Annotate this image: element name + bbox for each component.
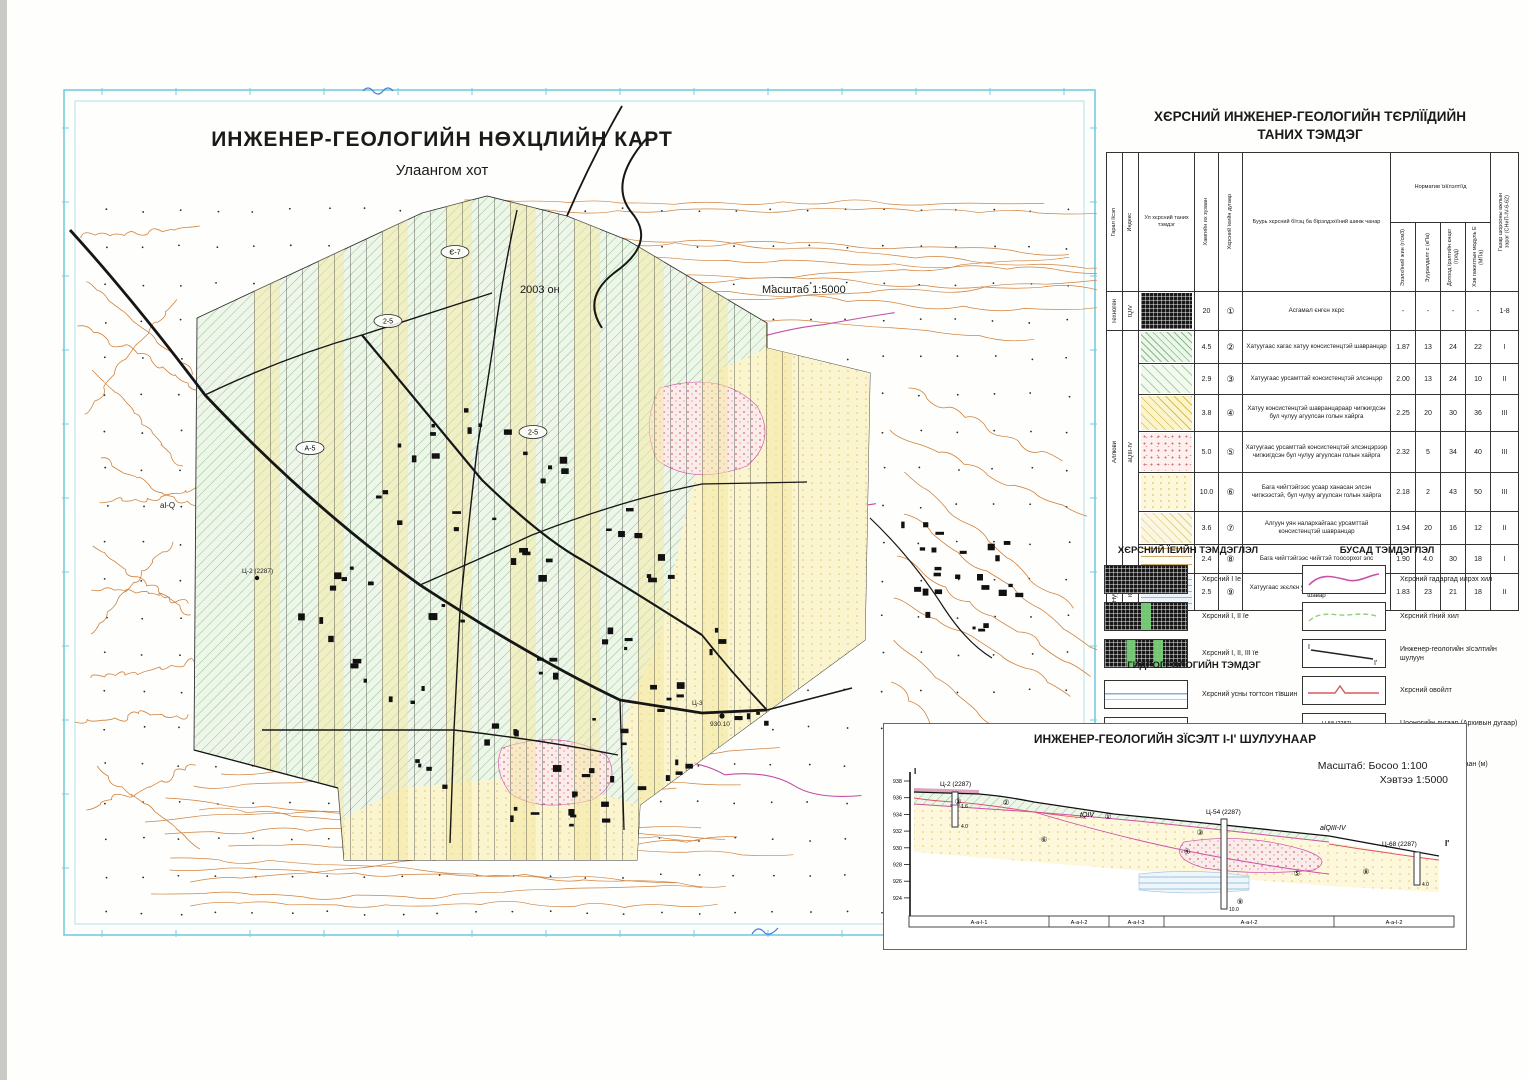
section-start-mark: I xyxy=(914,767,916,776)
svg-text:А-а-I-1: А-а-I-1 xyxy=(971,920,988,926)
section-line-swatch: I I' xyxy=(1302,639,1386,668)
hydro-legend-title: ГИДРОГЕОЛОГИЙН ТЭМДЭГ xyxy=(1104,660,1284,672)
section-end-mark: I' xyxy=(1445,839,1449,848)
cell-thickness: 3.8 xyxy=(1195,395,1219,432)
svg-text:926: 926 xyxy=(893,879,902,885)
svg-text:②: ② xyxy=(1003,798,1010,807)
cell-cohesion: 13 xyxy=(1416,364,1441,395)
ellipse-label: 2-5 xyxy=(383,319,393,326)
legend-item-label: Хєрсний I, II, III їе xyxy=(1202,649,1259,658)
ink-artifact xyxy=(360,82,400,98)
cell-friction: 24 xyxy=(1441,331,1466,364)
cell-layer-number: ⑦ xyxy=(1219,512,1243,545)
soil-swatch xyxy=(1139,512,1195,545)
cell-thickness: 20 xyxy=(1195,292,1219,331)
map-scale-label: Масштаб 1:5000 xyxy=(762,284,846,296)
legend-item: Хєрсний гадаргад илрэх хил xyxy=(1302,565,1522,594)
cell-layer-number: ③ xyxy=(1219,364,1243,395)
cell-density: 1.87 xyxy=(1391,331,1416,364)
soil-swatch xyxy=(1139,364,1195,395)
cell-origin: Аллюви xyxy=(1107,331,1123,574)
cell-friction: 16 xyxy=(1441,512,1466,545)
legend-title-line1: ХЄРСНИЙ ИНЖЕНЕР-ГЕОЛОГИЙН ТЄРЛЇЇДИЙН xyxy=(1100,108,1520,126)
legend-item: Хєрсний овойлт xyxy=(1302,676,1522,705)
cross-section-panel: 938936 934932 930928 926924 I 1.6 4.0 Ц-… xyxy=(883,723,1467,950)
cell-modulus: 12 xyxy=(1466,512,1491,545)
legend-item-label: Хєрсний I, II їе xyxy=(1202,612,1249,621)
legend-item-label: Хєрсний гїний хил xyxy=(1400,612,1459,621)
svg-text:934: 934 xyxy=(893,812,902,818)
cell-category: III xyxy=(1491,473,1519,512)
map-unit-label-alq: al-Q xyxy=(160,501,175,510)
deep-boundary-swatch xyxy=(1302,602,1386,631)
legend-item: Хєрсний I, II їе xyxy=(1104,602,1300,631)
table-row: 10.0 ⑥ Бага чийгтэйгээс усаар ханасан эл… xyxy=(1107,473,1519,512)
cell-density: 2.25 xyxy=(1391,395,1416,432)
col-header-cohesion: Зууралдалт с (кПа) xyxy=(1416,223,1441,292)
svg-text:10.0: 10.0 xyxy=(1229,907,1239,913)
cell-modulus: 40 xyxy=(1466,432,1491,473)
cell-layer-number: ① xyxy=(1219,292,1243,331)
svg-text:932: 932 xyxy=(893,829,902,835)
section-scale-vertical: Босоо 1:100 xyxy=(1369,760,1428,772)
table-row: 2.9 ③ Хатуугаас урсамттай консистенцтэй … xyxy=(1107,364,1519,395)
cell-density: 2.32 xyxy=(1391,432,1416,473)
cell-description: Алгуун уян налархайгаас урсамттай консис… xyxy=(1243,512,1391,545)
ellipse-label: 2-5 xyxy=(528,430,538,437)
svg-text:③: ③ xyxy=(1197,828,1204,837)
svg-text:А-а-I-2: А-а-I-2 xyxy=(1241,920,1258,926)
cell-density: - xyxy=(1391,292,1416,331)
cell-category: II xyxy=(1491,364,1519,395)
legend-item: Хєрсний гїний хил xyxy=(1302,602,1522,631)
cell-description: Бага чийгтэйгээс усаар ханасан элсэн чиг… xyxy=(1243,473,1391,512)
soil-swatch xyxy=(1139,395,1195,432)
svg-text:4.0: 4.0 xyxy=(1422,882,1429,888)
legend-item-label: Инженер-геологийн зїсэлтийн шулуун xyxy=(1400,645,1522,663)
cell-description: Асгамал єнгєн хєрс xyxy=(1243,292,1391,331)
cell-layer-number: ⑥ xyxy=(1219,473,1243,512)
col-header-density: Эзэлхїїний жин (г/см3) xyxy=(1391,223,1416,292)
cell-modulus: 10 xyxy=(1466,364,1491,395)
cell-index: aQIII-IV xyxy=(1123,331,1139,574)
col-header-modulus: Хэв гажилтын модуль Е (МПа) xyxy=(1466,223,1491,292)
col-header-thickness: Хамгийн их зузаан xyxy=(1195,153,1219,292)
table-row: 5.0 ⑤ Хатуугаас урсамттай консистенцтэй … xyxy=(1107,432,1519,473)
cell-modulus: 22 xyxy=(1466,331,1491,364)
cell-description: Хатуугаас хагас хатуу консистенцтэй шавр… xyxy=(1243,331,1391,364)
cell-thickness: 10.0 xyxy=(1195,473,1219,512)
cell-cohesion: 5 xyxy=(1416,432,1441,473)
unit-label-alq: alQIII-IV xyxy=(1320,825,1347,832)
legend-table-title: ХЄРСНИЙ ИНЖЕНЕР-ГЕОЛОГИЙН ТЄРЛЇЇДИЙН ТАН… xyxy=(1100,108,1520,144)
cell-friction: 24 xyxy=(1441,364,1466,395)
cell-cohesion: 20 xyxy=(1416,512,1441,545)
legend-item-label: Хєрсний I їе xyxy=(1202,575,1241,584)
layer-1-swatch xyxy=(1104,565,1188,594)
cell-cohesion: 2 xyxy=(1416,473,1441,512)
cell-category: II xyxy=(1491,512,1519,545)
col-header-layer-no: Хєрсний їеийн дугаар xyxy=(1219,153,1243,292)
col-header-friction: Дотоод їрэлтийн єнцєг (град) xyxy=(1441,223,1466,292)
cell-cohesion: 13 xyxy=(1416,331,1441,364)
cell-friction: 34 xyxy=(1441,432,1466,473)
section-distance-bar: А-а-I-1 А-а-I-2 А-а-I-3 А-а-I-2 А-а-I-2 xyxy=(909,916,1454,927)
soil-layer-legend-title: ХЄРСНИЙ ЇЕИЙН ТЭМДЭГЛЭЛ xyxy=(1108,545,1268,557)
cell-layer-number: ② xyxy=(1219,331,1243,364)
svg-text:4.0: 4.0 xyxy=(961,824,968,830)
svg-text:А-а-I-2: А-а-I-2 xyxy=(1386,920,1403,926)
map-borehole-label: Ц-3 xyxy=(692,700,703,707)
surface-boundary-swatch xyxy=(1302,565,1386,594)
cell-modulus: 36 xyxy=(1466,395,1491,432)
cell-cohesion: 20 xyxy=(1416,395,1441,432)
scanned-map-page: 2-5 А-5 2-5 Є-7 ИНЖЕНЕР-ГЕОЛОГИЙН НӨХЦЛИ… xyxy=(0,0,1527,1080)
cell-description: Хатуугаас урсамттай консистенцтэй элсэнц… xyxy=(1243,432,1391,473)
cell-layer-number: ⑤ xyxy=(1219,432,1243,473)
other-legend-title: БУСАД ТЭМДЭГЛЭЛ xyxy=(1302,545,1472,557)
cell-cohesion: - xyxy=(1416,292,1441,331)
cell-category: III xyxy=(1491,395,1519,432)
cell-friction: - xyxy=(1441,292,1466,331)
cell-density: 1.94 xyxy=(1391,512,1416,545)
table-row: 3.8 ④ Хатуу консистенцтэй шавранцараар ч… xyxy=(1107,395,1519,432)
cell-category: III xyxy=(1491,432,1519,473)
map-year-label: 2003 он xyxy=(520,284,560,296)
soil-heave-swatch xyxy=(1302,676,1386,705)
cell-category: I xyxy=(1491,331,1519,364)
unit-label-tq: tQIV xyxy=(1080,812,1095,819)
section-title: ИНЖЕНЕР-ГЕОЛОГИЙН ЗЇСЭЛТ I-I' ШУЛУУНААР xyxy=(884,732,1466,746)
cell-thickness: 5.0 xyxy=(1195,432,1219,473)
soil-layer-legend: ХЄРСНИЙ ЇЕИЙН ТЭМДЭГЛЭЛ Хєрсний I їе Хєр… xyxy=(1104,545,1300,676)
cross-section-drawing: 938936 934932 930928 926924 I 1.6 4.0 Ц-… xyxy=(884,724,1466,949)
table-row: Техноген tQIV 20 ① Асгамал єнгєн хєрс - … xyxy=(1107,292,1519,331)
table-row: Аллюви aQIII-IV 4.5 ② Хатуугаас хагас ха… xyxy=(1107,331,1519,364)
col-header-symbol: Ул хєрсний таних тэмдэг xyxy=(1139,153,1195,292)
svg-text:924: 924 xyxy=(893,896,902,902)
cell-density: 2.00 xyxy=(1391,364,1416,395)
svg-text:Ц-2 (2287): Ц-2 (2287) xyxy=(940,781,971,788)
soil-types-table: Гарал їїсэл Индекс Ул хєрсний таних тэмд… xyxy=(1106,152,1519,611)
cell-index: tQIV xyxy=(1123,292,1139,331)
svg-text:⑤: ⑤ xyxy=(1294,869,1301,878)
ellipse-label: Є-7 xyxy=(449,250,460,257)
cell-modulus: 50 xyxy=(1466,473,1491,512)
water-level-swatch xyxy=(1104,680,1188,709)
table-row: 3.6 ⑦ Алгуун уян налархайгаас урсамттай … xyxy=(1107,512,1519,545)
scanner-edge xyxy=(0,0,7,1080)
col-header-index: Индекс xyxy=(1123,153,1139,292)
cell-category: 1-8 xyxy=(1491,292,1519,331)
svg-text:⑥: ⑥ xyxy=(1041,835,1048,844)
svg-text:938: 938 xyxy=(893,779,902,785)
svg-text:930: 930 xyxy=(893,846,902,852)
cell-thickness: 2.9 xyxy=(1195,364,1219,395)
legend-item: Хєрсний усны тогтсон тївшин xyxy=(1104,680,1300,709)
ellipse-label: А-5 xyxy=(305,446,316,453)
svg-text:Ц-68 (2287): Ц-68 (2287) xyxy=(1382,841,1417,848)
soil-swatch xyxy=(1139,432,1195,473)
svg-text:①: ① xyxy=(1105,812,1112,821)
svg-text:928: 928 xyxy=(893,863,902,869)
cell-friction: 30 xyxy=(1441,395,1466,432)
legend-item-label: Хєрсний гадаргад илрэх хил xyxy=(1400,575,1492,584)
map-title: ИНЖЕНЕР-ГЕОЛОГИЙН НӨХЦЛИЙН КАРТ xyxy=(192,128,692,152)
cell-density: 2.18 xyxy=(1391,473,1416,512)
legend-item: I I' Инженер-геологийн зїсэлтийн шулуун xyxy=(1302,639,1522,668)
cell-thickness: 4.5 xyxy=(1195,331,1219,364)
svg-text:I': I' xyxy=(1374,660,1377,667)
elevation-labels: 938936 934932 930928 926924 xyxy=(893,779,902,902)
col-header-description: Буурь хєрсний бїтэц ба бїрэлдэхїїний шин… xyxy=(1243,153,1391,292)
legend-item-label: Хєрсний усны тогтсон тївшин xyxy=(1202,690,1297,699)
section-scale: Масштаб: Босоо 1:100 Хэвтээ 1:5000 xyxy=(1318,760,1448,787)
svg-text:А-а-I-2: А-а-I-2 xyxy=(1071,920,1088,926)
col-header-origin: Гарал їїсэл xyxy=(1107,153,1123,292)
section-scale-horizontal: Хэвтээ 1:5000 xyxy=(1380,774,1448,786)
col-header-norm-group: Норматив їзїїлэлтїїд xyxy=(1391,153,1491,223)
svg-text:I: I xyxy=(1308,644,1310,651)
ink-artifact xyxy=(748,922,784,942)
svg-text:936: 936 xyxy=(893,796,902,802)
cell-thickness: 3.6 xyxy=(1195,512,1219,545)
cell-layer-number: ④ xyxy=(1219,395,1243,432)
svg-text:А-а-I-3: А-а-I-3 xyxy=(1128,920,1145,926)
svg-text:1.6: 1.6 xyxy=(961,804,968,810)
soil-swatch xyxy=(1139,473,1195,512)
svg-text:④: ④ xyxy=(1184,847,1191,856)
soil-swatch xyxy=(1139,331,1195,364)
map-subtitle: Улаангом хот xyxy=(192,162,692,179)
svg-text:⑨: ⑨ xyxy=(1237,897,1244,906)
section-scale-prefix: Масштаб: xyxy=(1318,760,1366,772)
cell-modulus: - xyxy=(1466,292,1491,331)
cell-origin: Техноген xyxy=(1107,292,1123,331)
legend-item: Хєрсний I їе xyxy=(1104,565,1300,594)
cell-description: Хатуугаас урсамттай консистенцтэй элсэнц… xyxy=(1243,364,1391,395)
legend-title-line2: ТАНИХ ТЭМДЭГ xyxy=(1100,126,1520,144)
col-header-category: Газар шорооны ажлын зэрэг (СНиП-IV-6-62) xyxy=(1491,153,1519,292)
cell-description: Хатуу консистенцтэй шавранцараар чигжигд… xyxy=(1243,395,1391,432)
soil-swatch xyxy=(1139,292,1195,331)
svg-text:Ц-54 (2287): Ц-54 (2287) xyxy=(1206,809,1241,816)
legend-item-label: Хєрсний овойлт xyxy=(1400,686,1452,695)
layer-1-2-swatch xyxy=(1104,602,1188,631)
cell-friction: 43 xyxy=(1441,473,1466,512)
map-borehole-label: Ц-2 (2287) xyxy=(242,568,273,575)
svg-text:⑧: ⑧ xyxy=(1363,867,1370,876)
svg-text:③: ③ xyxy=(955,797,962,806)
map-borehole-elevation: 930.10 xyxy=(710,721,730,728)
